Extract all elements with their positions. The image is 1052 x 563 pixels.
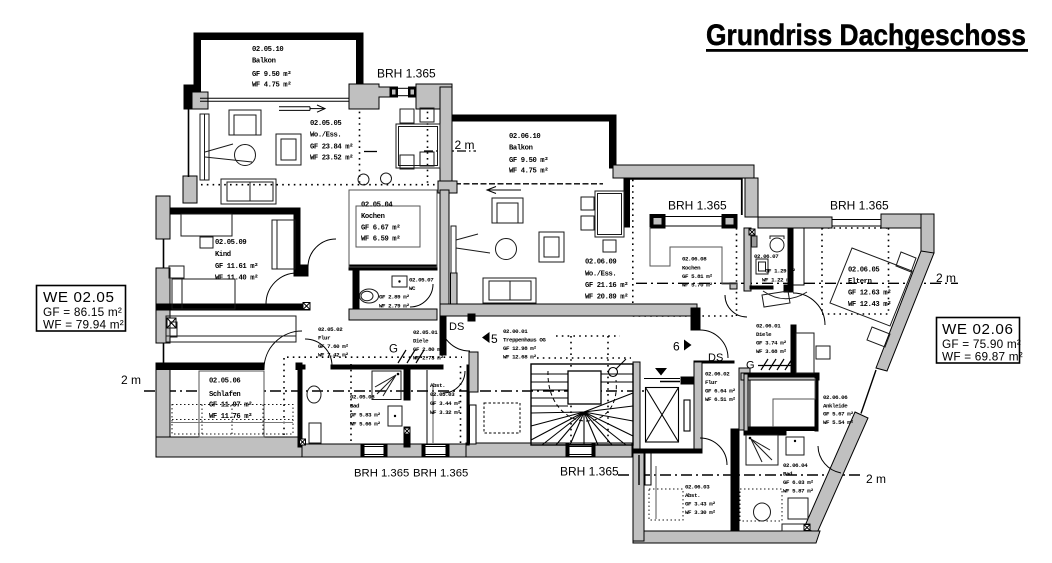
- svg-text:WF 11.40 m²: WF 11.40 m²: [215, 274, 258, 283]
- svg-text:WF 6.59 m²: WF 6.59 m²: [361, 235, 400, 244]
- svg-text:WF 20.89 m²: WF 20.89 m²: [585, 293, 628, 302]
- svg-text:Balkon: Balkon: [252, 58, 276, 66]
- svg-text:02.05.01: 02.05.01: [413, 329, 438, 336]
- svg-text:GF 2.80 m²: GF 2.80 m²: [413, 346, 443, 353]
- svg-text:WF 4.75 m²: WF 4.75 m²: [509, 167, 548, 176]
- svg-text:Bad: Bad: [350, 403, 360, 410]
- svg-text:WF = 69.87 m²: WF = 69.87 m²: [942, 350, 1023, 364]
- svg-text:BRH 1.365: BRH 1.365: [413, 468, 468, 480]
- svg-text:GF 21.16 m²: GF 21.16 m²: [585, 281, 628, 290]
- svg-text:02.06.06: 02.06.06: [823, 394, 848, 401]
- svg-text:GF 2.89 m²: GF 2.89 m²: [379, 294, 409, 301]
- svg-text:WF 5.70 m²: WF 5.70 m²: [682, 282, 712, 289]
- svg-text:WF 12.43 m²: WF 12.43 m²: [848, 300, 891, 309]
- svg-text:GF 6.03 m²: GF 6.03 m²: [783, 479, 813, 486]
- svg-text:WE 02.06: WE 02.06: [942, 321, 1014, 338]
- svg-text:WF 6.51 m²: WF 6.51 m²: [705, 396, 735, 403]
- svg-text:GF 6.67 m²: GF 6.67 m²: [361, 224, 400, 233]
- svg-text:WE 02.05: WE 02.05: [43, 289, 115, 306]
- svg-text:Abst.: Abst.: [685, 492, 700, 499]
- svg-text:WF 5.87 m²: WF 5.87 m²: [783, 488, 813, 495]
- svg-text:5: 5: [491, 332, 498, 346]
- svg-text:GF 7.60 m²: GF 7.60 m²: [318, 343, 348, 350]
- svg-text:BRH 1.365: BRH 1.365: [668, 199, 727, 213]
- svg-text:2 m: 2 m: [866, 472, 886, 486]
- svg-text:02.06.05: 02.06.05: [848, 267, 879, 275]
- svg-text:Eltern: Eltern: [848, 278, 872, 286]
- svg-text:G: G: [746, 360, 755, 372]
- svg-text:GF 9.50 m²: GF 9.50 m²: [509, 156, 548, 165]
- svg-text:Bad: Bad: [783, 471, 793, 478]
- svg-text:GF 23.84 m²: GF 23.84 m²: [310, 143, 353, 152]
- svg-text:Treppenhaus OG: Treppenhaus OG: [503, 337, 546, 344]
- svg-text:Wo./Ess.: Wo./Ess.: [310, 132, 341, 140]
- svg-text:GF 3.74 m²: GF 3.74 m²: [756, 340, 786, 347]
- svg-text:02.05.09: 02.05.09: [215, 239, 246, 247]
- svg-text:02.05.03: 02.05.03: [430, 391, 455, 398]
- svg-text:GF 12.98 m²: GF 12.98 m²: [503, 345, 536, 352]
- svg-text:WF 3.32 m²: WF 3.32 m²: [430, 409, 460, 416]
- svg-text:02.06.08: 02.06.08: [682, 256, 707, 263]
- svg-text:BRH 1.365: BRH 1.365: [377, 67, 436, 81]
- svg-text:02.06.09: 02.06.09: [585, 259, 616, 267]
- svg-text:02.06.07: 02.06.07: [754, 253, 779, 260]
- svg-text:GF 5.81 m²: GF 5.81 m²: [682, 273, 712, 280]
- svg-text:G: G: [389, 344, 398, 356]
- svg-text:GF 5.67 m²: GF 5.67 m²: [823, 411, 853, 418]
- svg-text:2 m: 2 m: [936, 271, 956, 285]
- svg-text:02.00.01: 02.00.01: [503, 328, 528, 335]
- svg-text:DS: DS: [449, 321, 464, 333]
- svg-text:02.05.02: 02.05.02: [318, 326, 343, 333]
- svg-text:WC: WC: [409, 285, 416, 292]
- svg-text:GF 3.43 m²: GF 3.43 m²: [685, 501, 715, 508]
- svg-text:Balkon: Balkon: [509, 145, 533, 153]
- svg-text:02.05.06: 02.05.06: [209, 378, 240, 386]
- svg-text:02.05.05: 02.05.05: [310, 120, 341, 128]
- svg-text:02.05.04: 02.05.04: [361, 202, 393, 210]
- svg-text:GF 9.50 m²: GF 9.50 m²: [252, 70, 291, 79]
- svg-text:Diele: Diele: [756, 331, 772, 338]
- svg-text:02.06.04: 02.06.04: [783, 462, 808, 469]
- svg-text:WF 23.52 m²: WF 23.52 m²: [310, 154, 353, 163]
- svg-text:WF = 79.94 m²: WF = 79.94 m²: [43, 318, 124, 332]
- svg-text:WF 11.76 m²: WF 11.76 m²: [209, 412, 252, 421]
- svg-text:WF 5.54 m²: WF 5.54 m²: [823, 419, 853, 426]
- svg-text:Ankleide: Ankleide: [823, 402, 848, 409]
- svg-text:02.06.10: 02.06.10: [509, 133, 540, 141]
- svg-text:WF 3.30 m²: WF 3.30 m²: [685, 509, 715, 516]
- svg-text:02.06.03: 02.06.03: [685, 484, 710, 491]
- svg-text:02.05.07: 02.05.07: [409, 277, 434, 284]
- svg-text:WF 1.22 m²: WF 1.22 m²: [762, 277, 792, 284]
- svg-text:02.06.02: 02.06.02: [705, 371, 730, 378]
- svg-text:BRH 1.365: BRH 1.365: [560, 465, 619, 479]
- svg-text:Kind: Kind: [215, 251, 231, 259]
- svg-text:Flur: Flur: [318, 335, 331, 342]
- svg-text:Abst.: Abst.: [430, 382, 445, 389]
- svg-text:GF 5.83 m²: GF 5.83 m²: [350, 412, 380, 419]
- svg-text:2 m: 2 m: [121, 373, 141, 387]
- svg-text:Wo./Ess.: Wo./Ess.: [585, 271, 616, 279]
- svg-text:2 m: 2 m: [455, 138, 475, 152]
- svg-text:GF 11.97 m²: GF 11.97 m²: [209, 401, 252, 410]
- svg-text:WF 12.68 m²: WF 12.68 m²: [503, 354, 536, 361]
- svg-text:6: 6: [673, 340, 680, 354]
- svg-text:Diele: Diele: [413, 338, 429, 345]
- svg-text:WF 4.75 m²: WF 4.75 m²: [252, 81, 291, 90]
- svg-text:WF 3.68 m²: WF 3.68 m²: [756, 348, 786, 355]
- svg-text:Schlafen: Schlafen: [209, 391, 240, 399]
- svg-text:02.06.01: 02.06.01: [756, 323, 781, 330]
- svg-text:Flur: Flur: [705, 379, 718, 386]
- svg-text:Grundriss Dachgeschoss: Grundriss Dachgeschoss: [706, 19, 1026, 52]
- svg-text:WF 2.79 m²: WF 2.79 m²: [379, 303, 409, 310]
- svg-text:GF 12.63 m²: GF 12.63 m²: [848, 289, 891, 298]
- svg-text:02.05.08: 02.05.08: [350, 394, 375, 401]
- svg-text:GF 1.29 m²: GF 1.29 m²: [765, 268, 795, 275]
- svg-text:02.05.10: 02.05.10: [252, 46, 283, 54]
- svg-text:GF 11.61 m²: GF 11.61 m²: [215, 262, 258, 271]
- svg-text:DS: DS: [708, 352, 723, 364]
- svg-text:GF 6.64 m²: GF 6.64 m²: [705, 388, 735, 395]
- svg-text:GF 3.44 m²: GF 3.44 m²: [430, 400, 460, 407]
- svg-text:Kochen: Kochen: [682, 265, 701, 272]
- svg-text:Kochen: Kochen: [361, 213, 385, 221]
- svg-text:BRH 1.365: BRH 1.365: [354, 468, 409, 480]
- svg-text:WF 5.66 m²: WF 5.66 m²: [350, 421, 380, 428]
- svg-text:BRH 1.365: BRH 1.365: [830, 199, 889, 213]
